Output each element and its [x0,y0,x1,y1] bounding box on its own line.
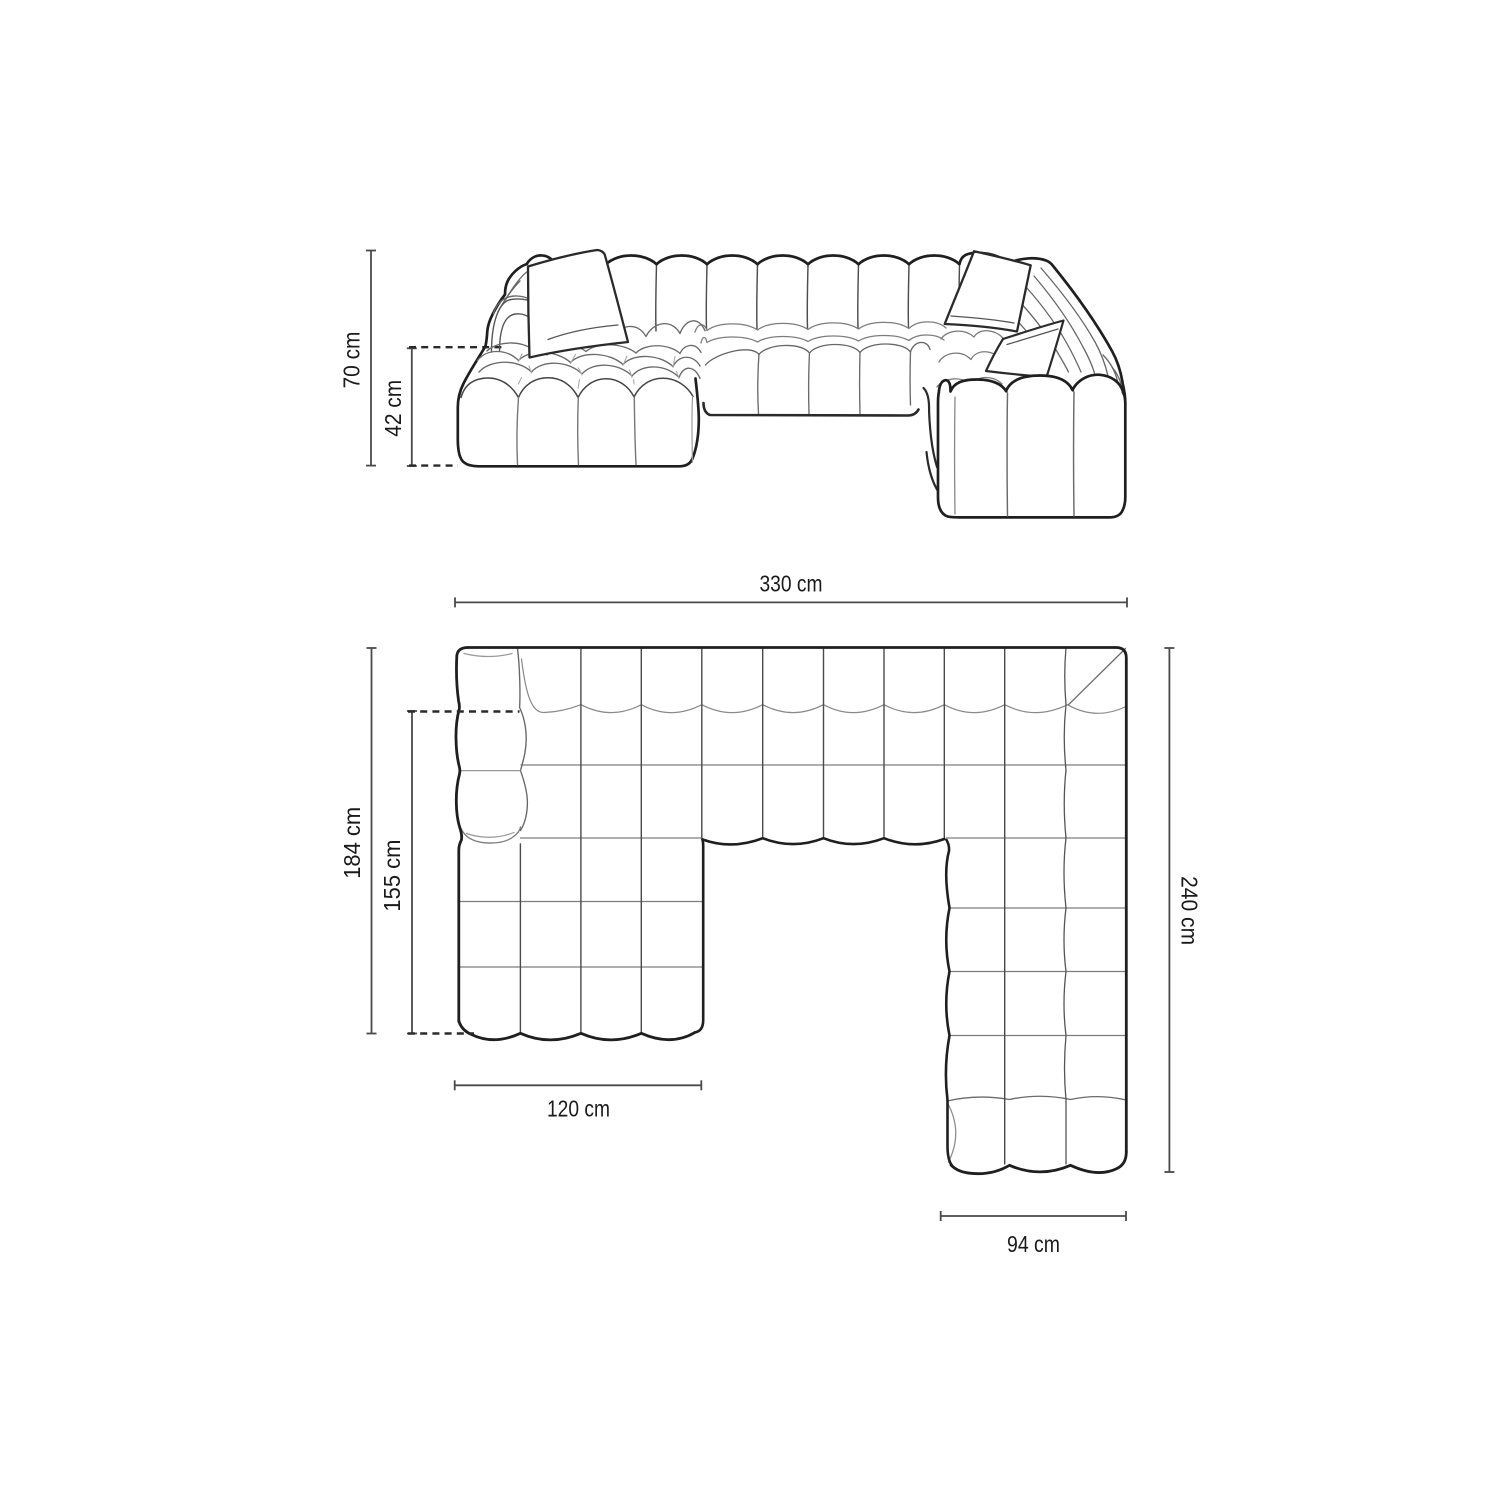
svg-text:42 cm: 42 cm [380,380,406,437]
svg-text:330 cm: 330 cm [760,571,823,597]
svg-text:120 cm: 120 cm [547,1095,610,1121]
svg-text:155 cm: 155 cm [379,840,405,912]
svg-text:70 cm: 70 cm [339,332,365,389]
svg-text:94 cm: 94 cm [1007,1231,1060,1257]
svg-text:240 cm: 240 cm [1176,876,1202,945]
svg-text:184 cm: 184 cm [339,807,365,879]
